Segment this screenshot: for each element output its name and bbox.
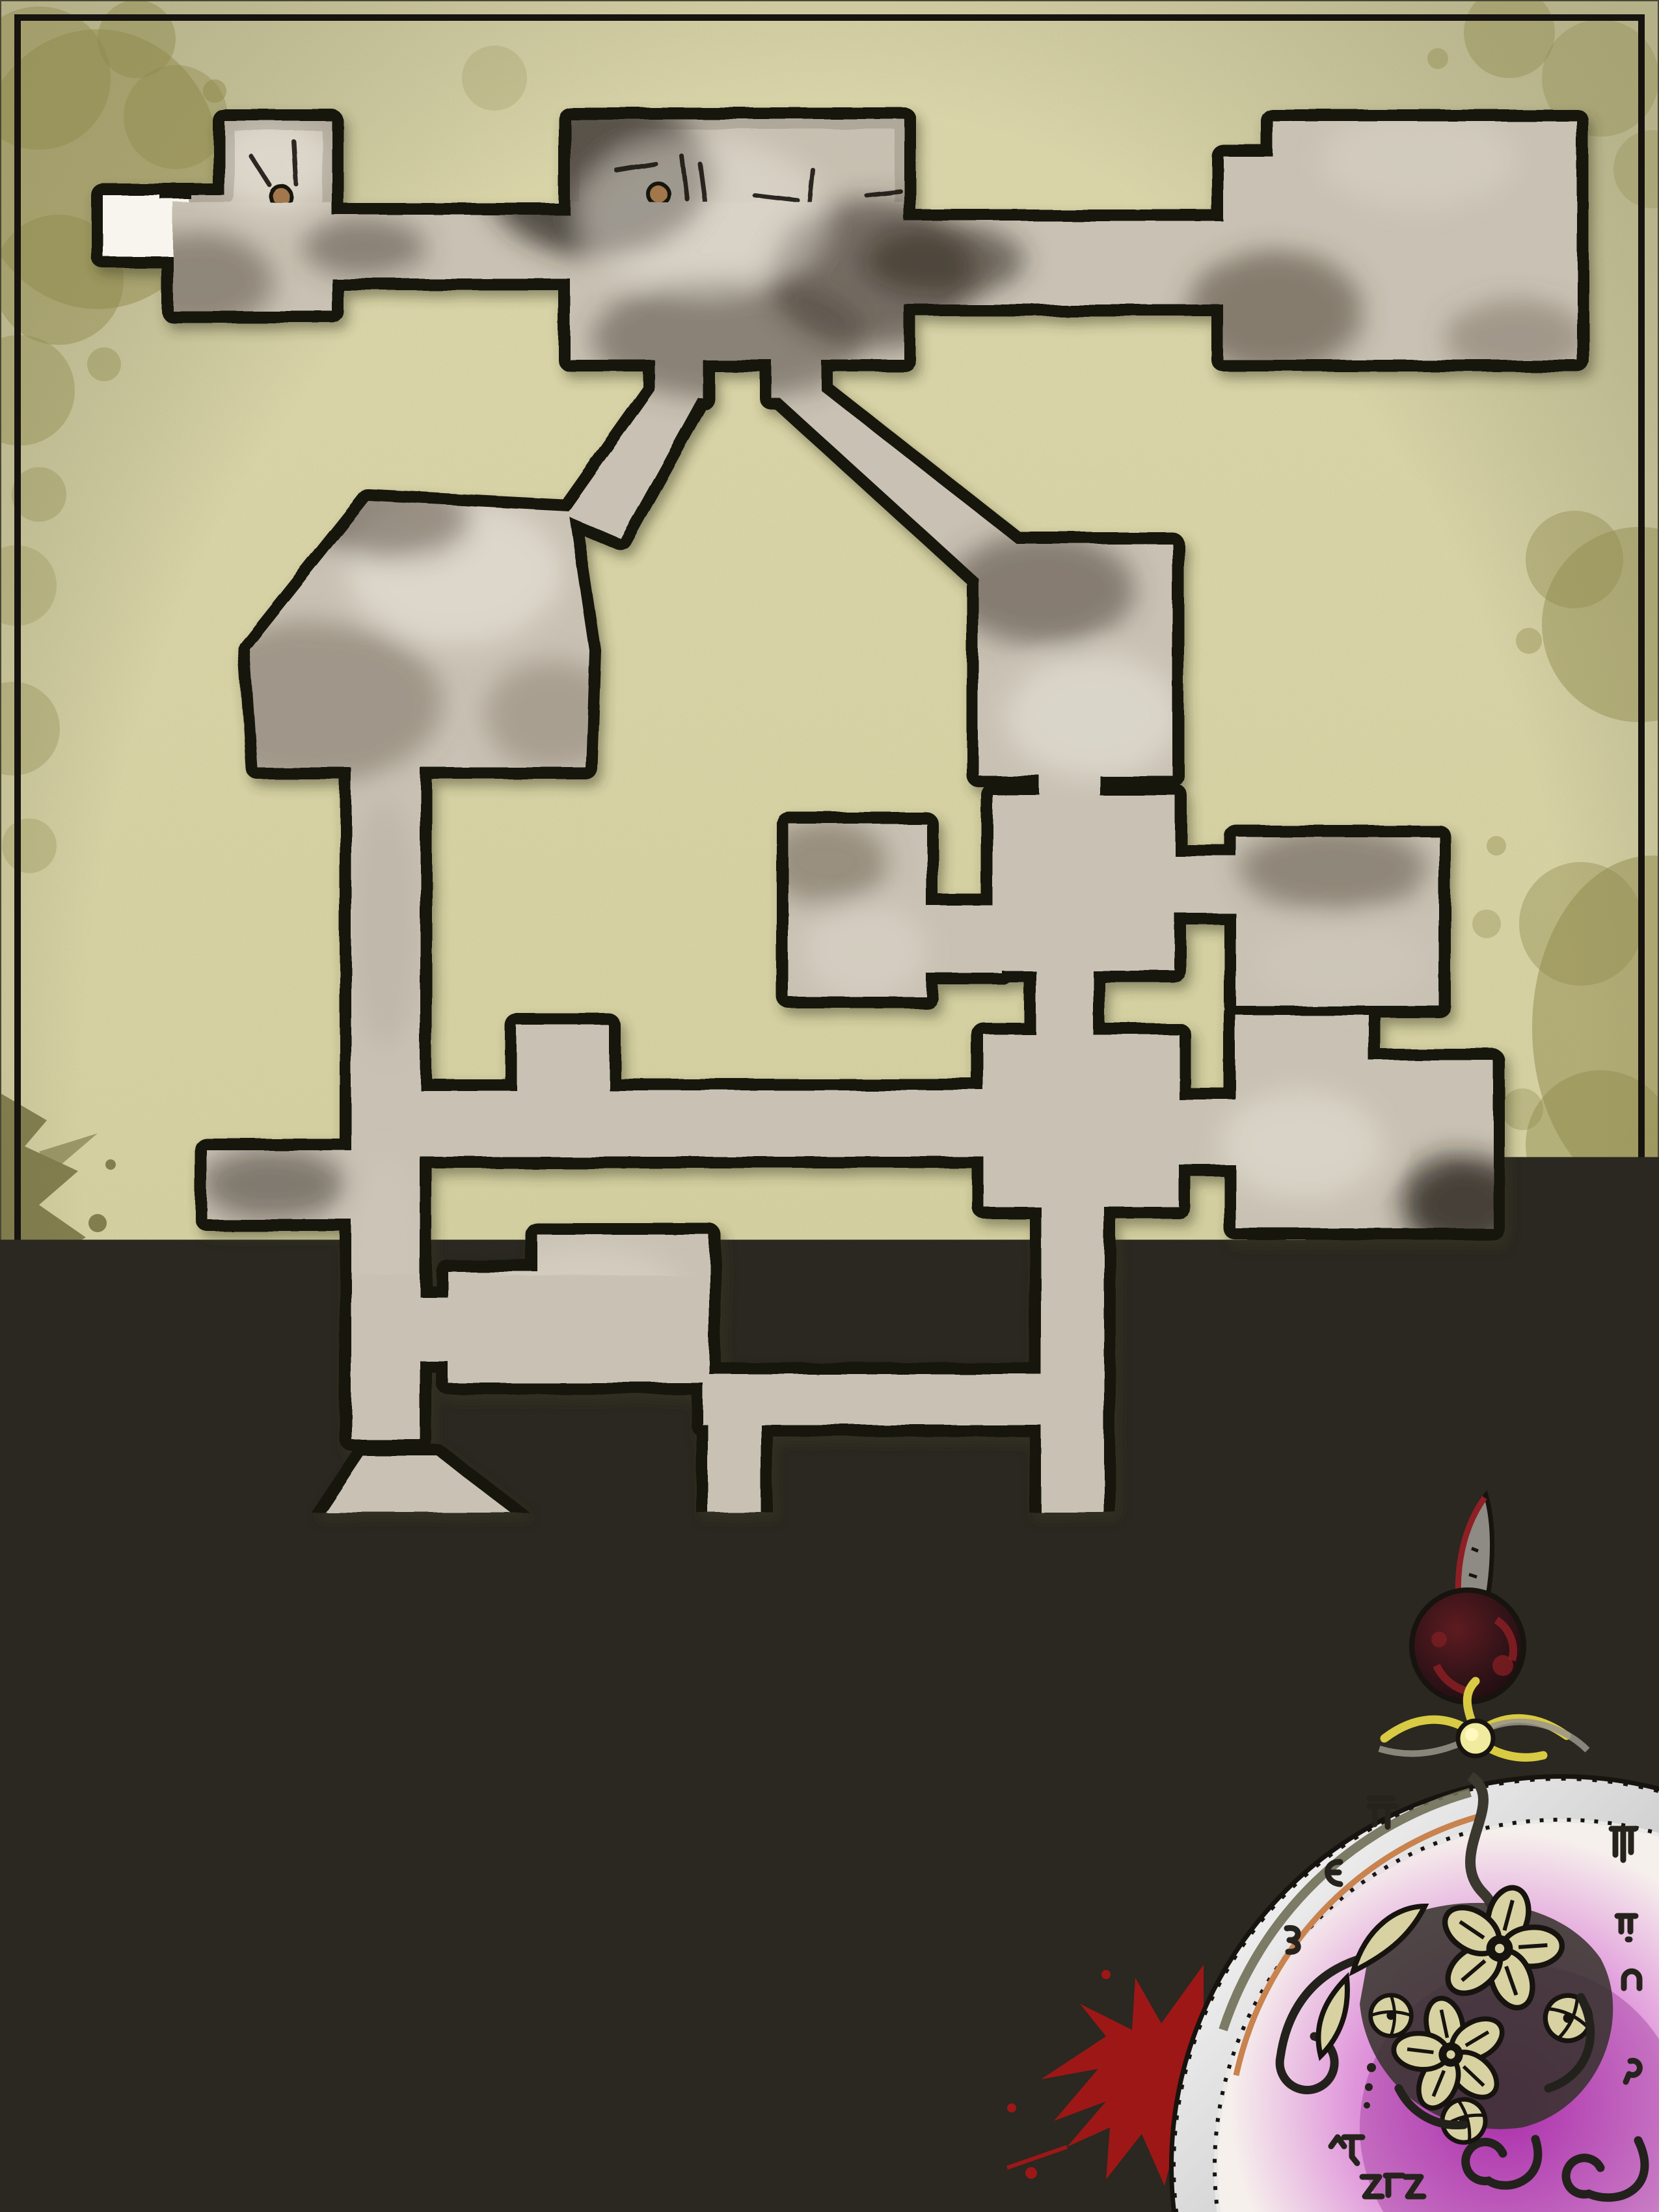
- dungeon-map-page: ETC Cartography by:: [0, 0, 1659, 2212]
- rune-panel-upper: [1012, 812, 1155, 954]
- blood-channel: [366, 1459, 435, 1967]
- floor-grate-icon: [395, 528, 453, 595]
- metal-slab-icon: [1310, 159, 1489, 325]
- flower-icon: [1371, 1995, 1412, 2036]
- dungeon-map-canvas: ETC Cartography by:: [0, 0, 1659, 2212]
- rune-panel-lower: [1003, 1049, 1159, 1192]
- logo-credit: Cartography by:: [1036, 2101, 1256, 2128]
- logo-brand: ETC: [1090, 2118, 1202, 2188]
